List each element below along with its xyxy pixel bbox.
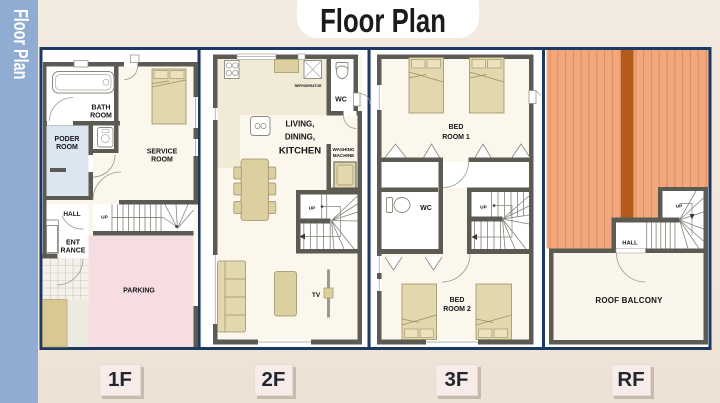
svg-text:LIVING,: LIVING, bbox=[286, 120, 315, 129]
svg-text:HALL: HALL bbox=[63, 211, 80, 218]
svg-text:WC: WC bbox=[335, 97, 347, 104]
svg-text:ROOM: ROOM bbox=[90, 113, 112, 120]
svg-text:KITCHEN: KITCHEN bbox=[279, 146, 321, 157]
svg-text:ROOM: ROOM bbox=[151, 157, 173, 164]
svg-text:PARKING: PARKING bbox=[123, 288, 155, 295]
svg-text:ROOM: ROOM bbox=[56, 144, 78, 151]
svg-text:PODER: PODER bbox=[55, 136, 80, 143]
svg-text:UP: UP bbox=[101, 215, 108, 221]
svg-text:BATH: BATH bbox=[92, 105, 111, 112]
svg-text:ROOM 1: ROOM 1 bbox=[442, 134, 470, 141]
svg-text:WC: WC bbox=[420, 205, 432, 212]
svg-text:MACHINE: MACHINE bbox=[333, 153, 354, 158]
svg-text:ROOF BALCONY: ROOF BALCONY bbox=[595, 296, 663, 305]
svg-text:ROOM 2: ROOM 2 bbox=[443, 306, 471, 313]
svg-text:SERVICE: SERVICE bbox=[147, 149, 178, 156]
svg-text:UP: UP bbox=[676, 204, 683, 210]
svg-text:HALL: HALL bbox=[622, 241, 638, 247]
svg-text:UP: UP bbox=[309, 206, 316, 212]
svg-text:REFRIGERATOR: REFRIGERATOR bbox=[295, 84, 322, 88]
svg-text:UP: UP bbox=[480, 205, 487, 211]
svg-text:BED: BED bbox=[449, 124, 464, 131]
svg-text:DINING,: DINING, bbox=[285, 133, 315, 142]
svg-text:WASHING: WASHING bbox=[333, 147, 355, 152]
svg-text:TV: TV bbox=[312, 292, 321, 299]
svg-text:BED: BED bbox=[450, 297, 465, 304]
svg-text:ENT: ENT bbox=[66, 240, 81, 247]
svg-text:RANCE: RANCE bbox=[61, 248, 86, 255]
